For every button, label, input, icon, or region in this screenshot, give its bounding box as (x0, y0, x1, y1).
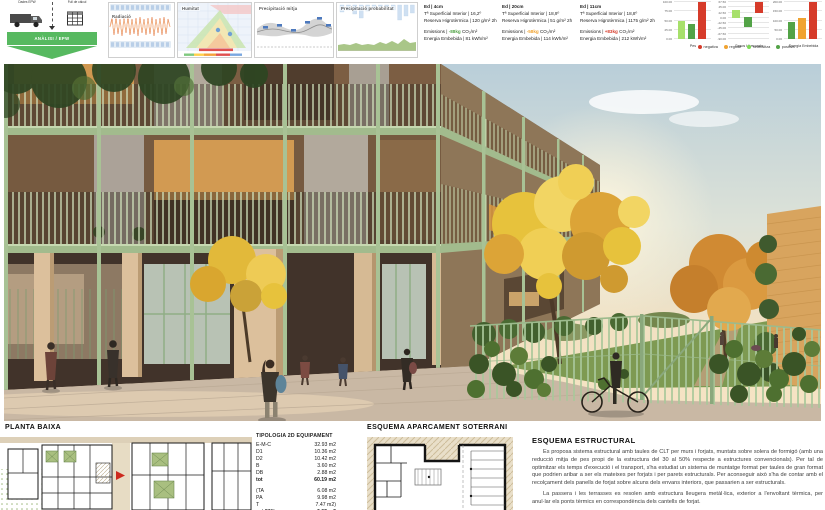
table-row: PA9.98 m2 (256, 495, 362, 502)
chart-bar (798, 18, 806, 39)
wall-embodied-energy: Energia Embebida | 212 kWh/m² (580, 36, 658, 43)
spreadsheet-icon (66, 10, 84, 33)
chart-legend: negativaregularneutralitzapositiva (698, 45, 795, 49)
plot-area (728, 2, 769, 39)
parking-title: ESQUEMA APARCAMENT SOTERRANI (367, 424, 507, 431)
chart-bar (678, 21, 685, 39)
table-row: DB2.88 m2 (256, 470, 362, 477)
structural-title: ESQUEMA ESTRUCTURAL (532, 436, 823, 445)
wall-surface-temp: Tª Superficial Interior | 16,2º (424, 11, 502, 18)
chart-bar (809, 2, 817, 39)
emissions-value: +83kg (605, 29, 618, 34)
plot-area (784, 2, 822, 39)
precip-prob-chart-panel: Precipitació probabilitat (336, 2, 418, 58)
green-arrow-icon (7, 46, 97, 59)
chart-bar (688, 24, 695, 39)
structural-paragraph-1: Es proposa sistema estructural amb taule… (532, 449, 823, 488)
structural-paragraph-2: La passera i les terrasses es resolen am… (532, 491, 823, 507)
area-table: TIPOLOGIA 2D EQUIPAMENT E-M-C32.93 m2D11… (256, 433, 362, 510)
table-row: tot60.19 m2 (256, 477, 362, 484)
plot-area (674, 2, 711, 39)
architectural-rendering (4, 64, 821, 421)
y-axis: 0.0050.00100.00150.00200.00 (770, 2, 783, 39)
wall-hygro-reserve: Reserva Higrotèrmica | 120 g/m² 2h (424, 18, 502, 25)
legend-item: neutralitza (747, 45, 770, 49)
table-row: D210.42 m2 (256, 456, 362, 463)
area-table-title: TIPOLOGIA 2D EQUIPAMENT (256, 433, 362, 439)
area-table-group-1: E-M-C32.93 m2D110.36 m2D210.42 m2B3.60 m… (256, 442, 362, 483)
wall-emissions: Emissions | +83kg CO₂/m² (580, 29, 658, 36)
structural-scheme: ESQUEMA ESTRUCTURAL Es proposa sistema e… (532, 436, 823, 510)
bar-chart-gasos-hivernacle: -90.00-67.50-45.00-22.500.0022.5045.0067… (714, 1, 770, 48)
workflow-banner: ANÀLISI / EPW (7, 32, 97, 45)
legend-item: positiva (776, 45, 794, 49)
wall-option-header: Ed | 11cm (580, 4, 658, 11)
emissions-value: -88kg (449, 29, 461, 34)
wall-hygro-reserve: Reserva Higrotèrmica | 51 g/m² 2h (502, 18, 580, 25)
chart-bar (698, 2, 705, 39)
y-axis: -90.00-67.50-45.00-22.500.0022.5045.0067… (714, 2, 727, 39)
table-row: (TA6.08 m2 (256, 488, 362, 495)
precip-mean-chart (255, 3, 333, 57)
workflow-sheet-label: Full de càlcul (56, 1, 98, 5)
y-axis: 0.0025.0050.0075.00100.00 (660, 2, 673, 39)
chart-bar (732, 10, 740, 17)
bar-chart-pes: 0.0025.0050.0075.00100.00 Pes (660, 1, 712, 48)
chart-bar (744, 17, 752, 27)
wall-option-header: Ed | 4cm (424, 4, 502, 11)
emissions-value: -58kg (527, 29, 539, 34)
humidity-psychrometric-chart (178, 3, 251, 57)
legend-item: regular (724, 45, 741, 49)
presentation-board: Dades EPW Full de càlcul ANÀLISI / EPW R… (0, 0, 825, 510)
bar-chart-energia-embebida: 0.0050.00100.00150.00200.00 Energia Embe… (770, 1, 823, 48)
workflow-source-label: Dades EPW (6, 1, 48, 5)
floor-plan-title: PLANTA BAIXA (5, 424, 61, 431)
legend-dot-icon (698, 45, 702, 49)
wall-surface-temp: Tª Superficial Interior | 18,9º (502, 11, 580, 18)
workflow-arrowhead-icon (49, 26, 55, 30)
truck-icon (9, 10, 45, 33)
wall-option-2: Ed | 20cm Tª Superficial Interior | 18,9… (502, 4, 580, 42)
data-workflow-diagram: Dades EPW Full de càlcul ANÀLISI / EPW (6, 1, 98, 61)
legend-dot-icon (776, 45, 780, 49)
table-row: E-M-C32.93 m2 (256, 442, 362, 449)
legend-dot-icon (724, 45, 728, 49)
wall-hygro-reserve: Reserva Higrotèrmica | 1175 g/m² 2h (580, 18, 658, 25)
humidity-chart-panel: Humitat (177, 2, 252, 58)
chart-bar (755, 2, 763, 13)
wall-emissions: Emissions | -58kg CO₂/m² (502, 29, 580, 36)
humidity-chart-label: Humitat (181, 6, 200, 11)
wall-embodied-energy: Energia Embebida | 81 kWh/m² (424, 36, 502, 43)
area-table-group-2: (TA6.08 m2PA9.98 m2T7.47 m2)ext 50%6.02 … (256, 488, 362, 510)
planta-baixa-plan (0, 437, 252, 510)
table-row: B3.60 m2 (256, 463, 362, 470)
wall-embodied-energy: Energia Embebida | 114 kWh/m² (502, 36, 580, 43)
wall-surface-temp: Tª Superficial Interior | 18,8º (580, 11, 658, 18)
wall-option-header: Ed | 20cm (502, 4, 580, 11)
radiation-chart-panel: Radiació (108, 2, 175, 58)
table-row: T7.47 m2) (256, 502, 362, 509)
legend-dot-icon (747, 45, 751, 49)
precip-prob-chart (337, 3, 417, 57)
legend-item: negativa (698, 45, 718, 49)
precip-prob-chart-label: Precipitació probabilitat (340, 6, 395, 11)
top-analysis-strip: Dades EPW Full de càlcul ANÀLISI / EPW R… (0, 0, 825, 62)
radiation-chart (109, 3, 173, 55)
precip-mean-chart-panel: Precipitació mitja (254, 2, 334, 58)
table-row: D110.36 m2 (256, 449, 362, 456)
parking-plan (367, 437, 513, 510)
workflow-arrow-line (52, 2, 53, 27)
wall-option-3: Ed | 11cm Tª Superficial Interior | 18,8… (580, 4, 658, 42)
precip-mean-chart-label: Precipitació mitja (258, 6, 298, 11)
wall-option-1: Ed | 4cm Tª Superficial Interior | 16,2º… (424, 4, 502, 42)
chart-bar (788, 22, 796, 39)
radiation-chart-label: Radiació (111, 14, 132, 19)
wall-emissions: Emissions | -88kg CO₂/m² (424, 29, 502, 36)
